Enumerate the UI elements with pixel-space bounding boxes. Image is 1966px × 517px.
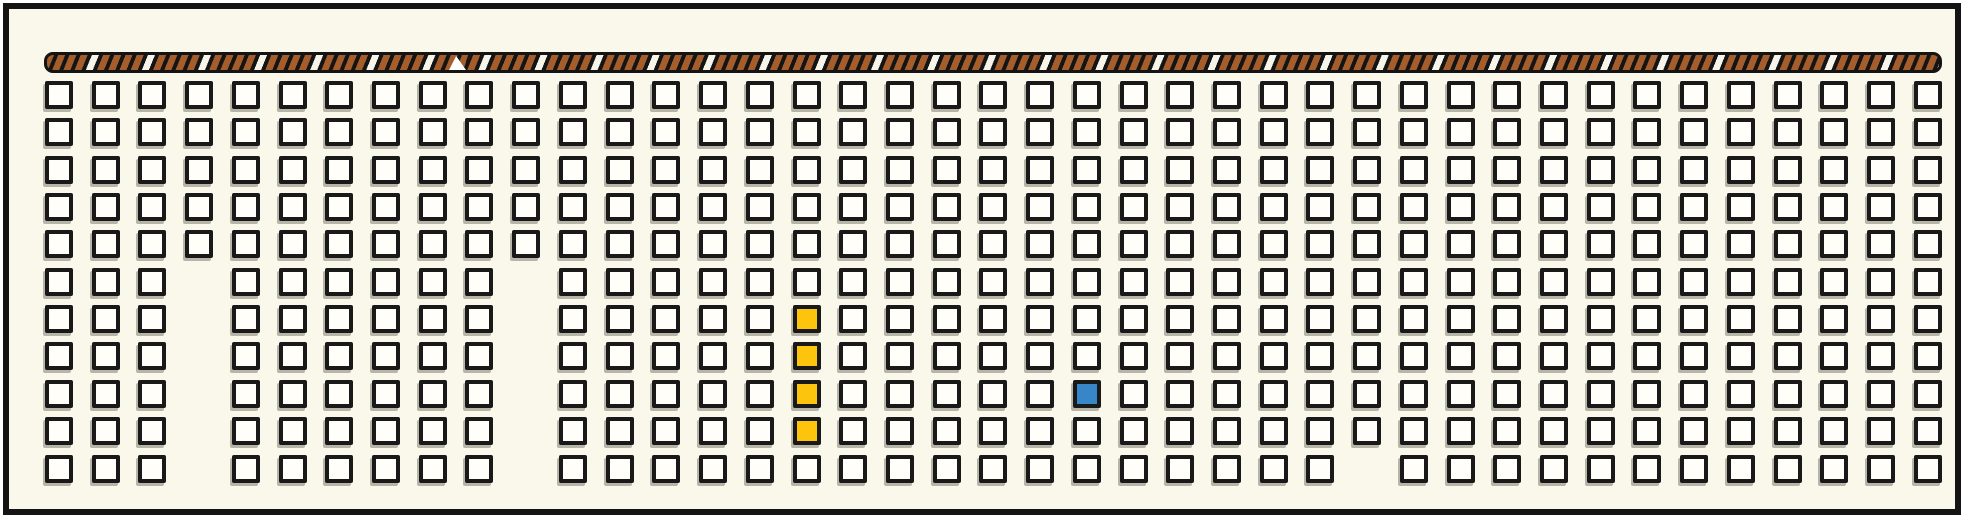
grid-cell[interactable] <box>45 455 73 483</box>
grid-cell[interactable] <box>1073 230 1101 258</box>
grid-cell[interactable] <box>839 156 867 184</box>
grid-cell[interactable] <box>1540 380 1568 408</box>
grid-cell[interactable] <box>1120 193 1148 221</box>
grid-cell[interactable] <box>419 193 447 221</box>
grid-cell[interactable] <box>1400 417 1428 445</box>
grid-cell[interactable] <box>933 342 961 370</box>
grid-cell[interactable] <box>1493 230 1521 258</box>
grid-cell[interactable] <box>1493 193 1521 221</box>
grid-cell[interactable] <box>1120 380 1148 408</box>
grid-cell[interactable] <box>1026 81 1054 109</box>
grid-cell[interactable] <box>1493 305 1521 333</box>
grid-cell[interactable] <box>512 193 540 221</box>
grid-cell[interactable] <box>1820 305 1848 333</box>
grid-cell[interactable] <box>1914 268 1942 296</box>
grid-cell[interactable] <box>746 455 774 483</box>
grid-cell[interactable] <box>699 342 727 370</box>
grid-cell[interactable] <box>1120 118 1148 146</box>
grid-cell[interactable] <box>45 417 73 445</box>
grid-cell[interactable] <box>1306 305 1334 333</box>
grid-cell[interactable] <box>1540 81 1568 109</box>
grid-cell[interactable] <box>652 230 680 258</box>
grid-cell[interactable] <box>1213 268 1241 296</box>
grid-cell[interactable] <box>232 305 260 333</box>
grid-cell[interactable] <box>1213 230 1241 258</box>
grid-cell[interactable] <box>325 455 353 483</box>
grid-cell[interactable] <box>45 230 73 258</box>
grid-cell[interactable] <box>185 81 213 109</box>
grid-cell[interactable] <box>138 380 166 408</box>
grid-cell[interactable] <box>1680 156 1708 184</box>
grid-cell[interactable] <box>559 342 587 370</box>
grid-cell[interactable] <box>372 81 400 109</box>
grid-cell[interactable] <box>1400 193 1428 221</box>
grid-cell[interactable] <box>699 455 727 483</box>
grid-cell[interactable] <box>1867 230 1895 258</box>
grid-cell[interactable] <box>839 305 867 333</box>
grid-cell[interactable] <box>45 156 73 184</box>
grid-cell[interactable] <box>1867 193 1895 221</box>
grid-cell[interactable] <box>886 118 914 146</box>
grid-cell[interactable] <box>232 342 260 370</box>
grid-cell[interactable] <box>372 380 400 408</box>
grid-cell[interactable] <box>1914 305 1942 333</box>
grid-cell[interactable] <box>1914 342 1942 370</box>
grid-cell[interactable] <box>979 81 1007 109</box>
grid-cell[interactable] <box>465 380 493 408</box>
grid-cell[interactable] <box>793 455 821 483</box>
grid-cell-yellow[interactable] <box>793 417 821 445</box>
grid-cell[interactable] <box>1166 230 1194 258</box>
grid-cell[interactable] <box>839 81 867 109</box>
grid-cell[interactable] <box>1540 305 1568 333</box>
grid-cell[interactable] <box>325 81 353 109</box>
grid-cell[interactable] <box>1353 380 1381 408</box>
grid-cell[interactable] <box>232 455 260 483</box>
grid-cell[interactable] <box>1914 118 1942 146</box>
grid-cell[interactable] <box>979 455 1007 483</box>
grid-cell[interactable] <box>1120 268 1148 296</box>
grid-cell[interactable] <box>1493 417 1521 445</box>
grid-cell[interactable] <box>419 305 447 333</box>
grid-cell[interactable] <box>1587 305 1615 333</box>
grid-cell[interactable] <box>1493 81 1521 109</box>
grid-cell[interactable] <box>1213 305 1241 333</box>
grid-cell[interactable] <box>979 380 1007 408</box>
grid-cell[interactable] <box>1447 342 1475 370</box>
grid-cell[interactable] <box>1306 380 1334 408</box>
grid-cell[interactable] <box>1540 417 1568 445</box>
grid-cell[interactable] <box>746 268 774 296</box>
grid-cell[interactable] <box>92 268 120 296</box>
grid-cell[interactable] <box>746 193 774 221</box>
grid-cell[interactable] <box>1633 118 1661 146</box>
grid-cell[interactable] <box>512 118 540 146</box>
grid-cell[interactable] <box>1260 305 1288 333</box>
grid-cell[interactable] <box>1587 156 1615 184</box>
grid-cell[interactable] <box>1540 342 1568 370</box>
grid-cell[interactable] <box>419 455 447 483</box>
grid-cell[interactable] <box>746 305 774 333</box>
grid-cell[interactable] <box>92 81 120 109</box>
grid-cell[interactable] <box>1680 342 1708 370</box>
grid-cell[interactable] <box>1633 230 1661 258</box>
grid-cell[interactable] <box>699 118 727 146</box>
grid-cell[interactable] <box>979 230 1007 258</box>
grid-cell[interactable] <box>1820 81 1848 109</box>
grid-cell[interactable] <box>793 230 821 258</box>
grid-cell[interactable] <box>1774 342 1802 370</box>
grid-cell[interactable] <box>606 417 634 445</box>
grid-cell[interactable] <box>1540 268 1568 296</box>
grid-cell[interactable] <box>1914 380 1942 408</box>
grid-cell[interactable] <box>652 118 680 146</box>
grid-cell[interactable] <box>232 268 260 296</box>
grid-cell[interactable] <box>886 193 914 221</box>
grid-cell[interactable] <box>1400 230 1428 258</box>
grid-cell[interactable] <box>839 417 867 445</box>
grid-cell[interactable] <box>325 268 353 296</box>
grid-cell[interactable] <box>559 156 587 184</box>
grid-cell[interactable] <box>699 230 727 258</box>
grid-cell[interactable] <box>606 230 634 258</box>
grid-cell[interactable] <box>979 193 1007 221</box>
grid-cell[interactable] <box>652 455 680 483</box>
grid-cell[interactable] <box>1774 230 1802 258</box>
grid-cell[interactable] <box>465 118 493 146</box>
grid-cell[interactable] <box>886 230 914 258</box>
grid-cell[interactable] <box>92 193 120 221</box>
grid-cell[interactable] <box>372 455 400 483</box>
grid-cell[interactable] <box>886 81 914 109</box>
grid-cell[interactable] <box>92 380 120 408</box>
grid-cell[interactable] <box>1026 230 1054 258</box>
grid-cell[interactable] <box>699 81 727 109</box>
grid-cell[interactable] <box>138 455 166 483</box>
grid-cell[interactable] <box>1120 230 1148 258</box>
grid-cell[interactable] <box>465 193 493 221</box>
grid-cell[interactable] <box>652 156 680 184</box>
grid-cell[interactable] <box>886 156 914 184</box>
grid-cell[interactable] <box>793 156 821 184</box>
grid-cell[interactable] <box>1120 342 1148 370</box>
grid-cell[interactable] <box>419 342 447 370</box>
grid-cell[interactable] <box>1633 193 1661 221</box>
grid-cell[interactable] <box>1447 380 1475 408</box>
grid-cell[interactable] <box>1867 417 1895 445</box>
grid-cell[interactable] <box>1260 118 1288 146</box>
grid-cell[interactable] <box>1306 342 1334 370</box>
grid-cell[interactable] <box>652 81 680 109</box>
grid-cell[interactable] <box>1914 455 1942 483</box>
grid-cell[interactable] <box>325 118 353 146</box>
grid-cell[interactable] <box>1447 230 1475 258</box>
grid-cell[interactable] <box>1540 230 1568 258</box>
grid-cell[interactable] <box>1447 305 1475 333</box>
grid-cell[interactable] <box>1260 156 1288 184</box>
grid-cell[interactable] <box>1680 230 1708 258</box>
grid-cell[interactable] <box>1166 81 1194 109</box>
grid-cell[interactable] <box>512 81 540 109</box>
grid-cell[interactable] <box>1213 156 1241 184</box>
grid-cell[interactable] <box>232 230 260 258</box>
grid-cell[interactable] <box>1353 268 1381 296</box>
grid-cell[interactable] <box>1400 455 1428 483</box>
grid-cell[interactable] <box>1306 118 1334 146</box>
grid-cell[interactable] <box>1213 81 1241 109</box>
grid-cell[interactable] <box>699 417 727 445</box>
grid-cell[interactable] <box>979 118 1007 146</box>
grid-cell[interactable] <box>1213 417 1241 445</box>
grid-cell[interactable] <box>279 156 307 184</box>
grid-cell[interactable] <box>1260 193 1288 221</box>
grid-cell[interactable] <box>279 305 307 333</box>
grid-cell[interactable] <box>1306 156 1334 184</box>
grid-cell[interactable] <box>746 81 774 109</box>
grid-cell[interactable] <box>279 81 307 109</box>
grid-cell[interactable] <box>138 305 166 333</box>
grid-cell[interactable] <box>325 380 353 408</box>
grid-cell[interactable] <box>1727 417 1755 445</box>
grid-cell[interactable] <box>92 156 120 184</box>
grid-cell[interactable] <box>699 268 727 296</box>
grid-cell[interactable] <box>1867 118 1895 146</box>
grid-cell[interactable] <box>92 305 120 333</box>
grid-cell[interactable] <box>933 268 961 296</box>
grid-cell[interactable] <box>419 417 447 445</box>
grid-cell[interactable] <box>933 156 961 184</box>
grid-cell[interactable] <box>699 156 727 184</box>
grid-cell[interactable] <box>465 305 493 333</box>
grid-cell[interactable] <box>512 230 540 258</box>
grid-cell[interactable] <box>1166 118 1194 146</box>
grid-cell[interactable] <box>185 193 213 221</box>
grid-cell[interactable] <box>1774 380 1802 408</box>
grid-cell[interactable] <box>793 193 821 221</box>
grid-cell[interactable] <box>559 380 587 408</box>
grid-cell[interactable] <box>606 156 634 184</box>
grid-cell[interactable] <box>1867 81 1895 109</box>
grid-cell[interactable] <box>232 81 260 109</box>
grid-cell[interactable] <box>1680 268 1708 296</box>
grid-cell[interactable] <box>699 193 727 221</box>
grid-cell[interactable] <box>1447 417 1475 445</box>
grid-cell[interactable] <box>1306 268 1334 296</box>
grid-cell[interactable] <box>45 305 73 333</box>
grid-cell[interactable] <box>746 118 774 146</box>
grid-cell-yellow[interactable] <box>793 305 821 333</box>
grid-cell[interactable] <box>1867 342 1895 370</box>
grid-cell[interactable] <box>1633 417 1661 445</box>
grid-cell[interactable] <box>1306 455 1334 483</box>
grid-cell[interactable] <box>559 268 587 296</box>
grid-cell[interactable] <box>1633 81 1661 109</box>
grid-cell[interactable] <box>886 268 914 296</box>
grid-cell[interactable] <box>372 230 400 258</box>
grid-cell[interactable] <box>1540 118 1568 146</box>
grid-cell[interactable] <box>979 305 1007 333</box>
grid-cell[interactable] <box>1493 268 1521 296</box>
grid-cell[interactable] <box>1260 268 1288 296</box>
grid-cell[interactable] <box>1493 342 1521 370</box>
grid-cell[interactable] <box>559 81 587 109</box>
grid-cell[interactable] <box>1353 305 1381 333</box>
grid-cell[interactable] <box>232 380 260 408</box>
grid-cell[interactable] <box>1213 342 1241 370</box>
grid-cell[interactable] <box>1260 455 1288 483</box>
grid-cell[interactable] <box>933 118 961 146</box>
grid-cell[interactable] <box>1587 118 1615 146</box>
grid-cell[interactable] <box>232 417 260 445</box>
grid-cell[interactable] <box>1353 417 1381 445</box>
grid-cell[interactable] <box>279 342 307 370</box>
grid-cell[interactable] <box>92 342 120 370</box>
grid-cell[interactable] <box>1633 342 1661 370</box>
grid-cell[interactable] <box>1353 193 1381 221</box>
grid-cell[interactable] <box>45 118 73 146</box>
grid-cell[interactable] <box>512 156 540 184</box>
grid-cell[interactable] <box>465 230 493 258</box>
grid-cell[interactable] <box>839 230 867 258</box>
grid-cell[interactable] <box>606 455 634 483</box>
grid-cell[interactable] <box>1587 268 1615 296</box>
grid-cell[interactable] <box>1353 230 1381 258</box>
grid-cell[interactable] <box>232 118 260 146</box>
grid-cell[interactable] <box>1680 380 1708 408</box>
grid-cell[interactable] <box>1213 118 1241 146</box>
grid-cell[interactable] <box>1260 230 1288 258</box>
grid-cell[interactable] <box>652 380 680 408</box>
grid-cell[interactable] <box>1447 455 1475 483</box>
grid-cell[interactable] <box>652 193 680 221</box>
grid-cell[interactable] <box>1026 342 1054 370</box>
grid-cell[interactable] <box>1026 118 1054 146</box>
grid-cell[interactable] <box>652 342 680 370</box>
grid-cell[interactable] <box>45 268 73 296</box>
grid-cell[interactable] <box>606 342 634 370</box>
grid-cell[interactable] <box>138 230 166 258</box>
grid-cell[interactable] <box>138 417 166 445</box>
grid-cell[interactable] <box>933 417 961 445</box>
grid-cell[interactable] <box>933 455 961 483</box>
grid-cell[interactable] <box>839 380 867 408</box>
grid-cell[interactable] <box>372 342 400 370</box>
grid-cell[interactable] <box>1727 305 1755 333</box>
grid-cell[interactable] <box>1820 193 1848 221</box>
grid-cell[interactable] <box>1447 156 1475 184</box>
grid-cell[interactable] <box>606 118 634 146</box>
grid-cell[interactable] <box>1166 380 1194 408</box>
grid-cell[interactable] <box>1073 193 1101 221</box>
grid-cell[interactable] <box>465 81 493 109</box>
grid-cell[interactable] <box>279 455 307 483</box>
grid-cell[interactable] <box>886 305 914 333</box>
grid-cell[interactable] <box>1914 156 1942 184</box>
grid-cell[interactable] <box>1260 417 1288 445</box>
grid-cell[interactable] <box>1260 81 1288 109</box>
grid-cell[interactable] <box>419 230 447 258</box>
grid-cell[interactable] <box>839 268 867 296</box>
grid-cell[interactable] <box>419 380 447 408</box>
grid-cell[interactable] <box>699 380 727 408</box>
grid-cell[interactable] <box>1493 455 1521 483</box>
grid-cell[interactable] <box>1120 455 1148 483</box>
grid-cell[interactable] <box>652 268 680 296</box>
grid-cell[interactable] <box>372 156 400 184</box>
grid-cell[interactable] <box>1914 230 1942 258</box>
grid-cell[interactable] <box>839 193 867 221</box>
grid-cell[interactable] <box>1914 81 1942 109</box>
grid-cell[interactable] <box>1026 193 1054 221</box>
grid-cell[interactable] <box>933 305 961 333</box>
grid-cell[interactable] <box>279 380 307 408</box>
grid-cell[interactable] <box>933 230 961 258</box>
grid-cell[interactable] <box>1540 193 1568 221</box>
grid-cell[interactable] <box>325 305 353 333</box>
grid-cell[interactable] <box>1447 81 1475 109</box>
grid-cell[interactable] <box>793 118 821 146</box>
grid-cell[interactable] <box>1400 156 1428 184</box>
grid-cell[interactable] <box>1306 193 1334 221</box>
grid-cell[interactable] <box>1727 342 1755 370</box>
grid-cell[interactable] <box>1400 342 1428 370</box>
grid-cell[interactable] <box>1400 268 1428 296</box>
grid-cell[interactable] <box>1166 305 1194 333</box>
grid-cell[interactable] <box>1353 342 1381 370</box>
grid-cell[interactable] <box>1633 156 1661 184</box>
grid-cell[interactable] <box>45 81 73 109</box>
grid-cell[interactable] <box>1166 342 1194 370</box>
grid-cell[interactable] <box>606 193 634 221</box>
grid-cell[interactable] <box>559 455 587 483</box>
grid-cell[interactable] <box>279 417 307 445</box>
grid-cell[interactable] <box>1867 455 1895 483</box>
grid-cell[interactable] <box>1820 156 1848 184</box>
grid-cell[interactable] <box>1073 81 1101 109</box>
grid-cell[interactable] <box>138 193 166 221</box>
grid-cell[interactable] <box>886 455 914 483</box>
grid-cell[interactable] <box>1120 417 1148 445</box>
grid-cell[interactable] <box>1120 156 1148 184</box>
grid-cell[interactable] <box>1680 81 1708 109</box>
grid-cell[interactable] <box>92 118 120 146</box>
grid-cell[interactable] <box>1680 118 1708 146</box>
grid-cell[interactable] <box>1587 342 1615 370</box>
grid-cell[interactable] <box>279 118 307 146</box>
grid-cell[interactable] <box>1774 118 1802 146</box>
grid-cell[interactable] <box>1774 417 1802 445</box>
grid-cell[interactable] <box>465 268 493 296</box>
grid-cell[interactable] <box>1073 417 1101 445</box>
grid-cell[interactable] <box>559 118 587 146</box>
grid-cell[interactable] <box>1820 230 1848 258</box>
grid-cell[interactable] <box>606 81 634 109</box>
grid-cell[interactable] <box>45 193 73 221</box>
grid-cell[interactable] <box>372 305 400 333</box>
grid-cell-blue[interactable] <box>1073 380 1101 408</box>
grid-cell[interactable] <box>1727 455 1755 483</box>
grid-cell[interactable] <box>1727 193 1755 221</box>
grid-cell[interactable] <box>1867 268 1895 296</box>
grid-cell[interactable] <box>1166 268 1194 296</box>
grid-cell[interactable] <box>325 230 353 258</box>
grid-cell[interactable] <box>1213 193 1241 221</box>
grid-cell[interactable] <box>1120 81 1148 109</box>
grid-cell[interactable] <box>1026 380 1054 408</box>
grid-cell[interactable] <box>1026 455 1054 483</box>
grid-cell[interactable] <box>1166 455 1194 483</box>
grid-cell[interactable] <box>138 118 166 146</box>
